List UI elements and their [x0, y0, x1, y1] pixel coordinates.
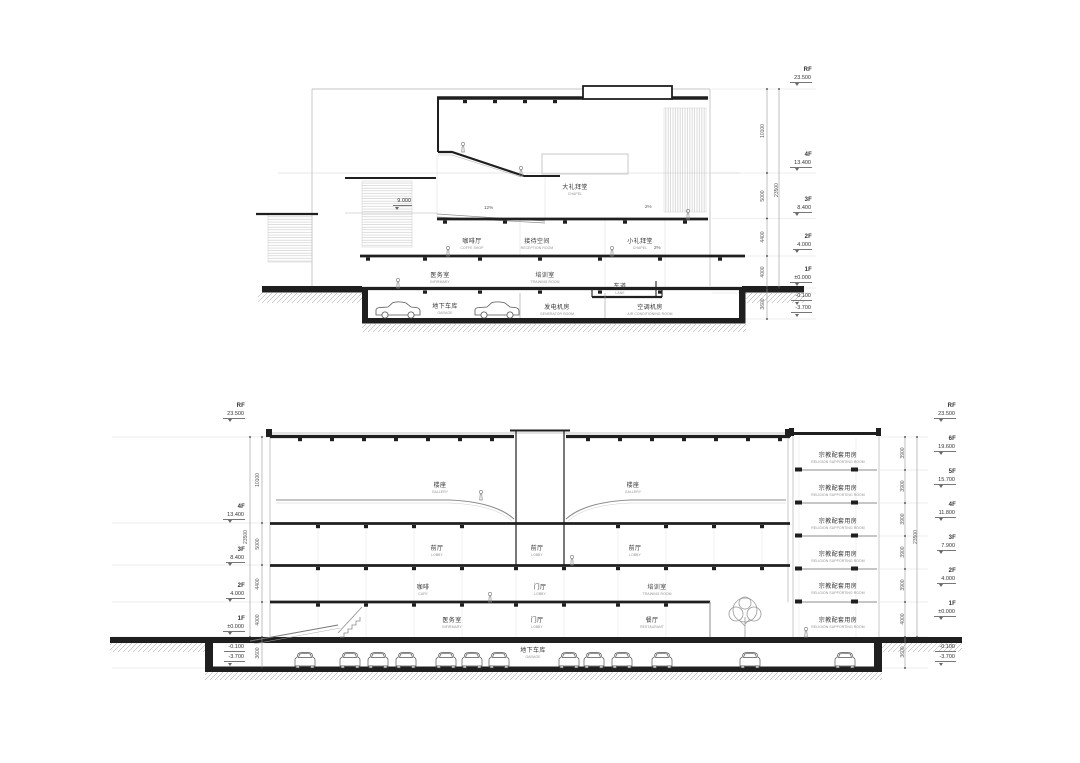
- room-label: 车道LANE: [590, 284, 650, 295]
- room-label: 大礼拜堂CHAPEL: [545, 185, 605, 196]
- level-triangle-icon: [795, 250, 799, 253]
- tree-icon: [729, 597, 761, 637]
- room-label: 医务室INFIRMARY: [422, 618, 482, 629]
- room-label: 宗教配套用房RELIGION SUPPORTING ROOM: [798, 618, 878, 629]
- level-triangle-icon: [939, 518, 943, 521]
- room-label: 门厅LOBBY: [507, 618, 567, 629]
- room-label: 楼座GALLERY: [603, 483, 663, 494]
- level-marker: 1F±0.000: [205, 616, 245, 635]
- level-marker: -0.100: [916, 644, 956, 652]
- dim-label: 5000: [254, 529, 262, 559]
- level-marker: 3F8.400: [205, 547, 245, 566]
- level-triangle-icon: [795, 83, 799, 86]
- room-label: 前厅LOBBY: [507, 546, 567, 557]
- section-drawing-sheet: RF23.500 4F13.400 3F8.400 2F4.000 1F±0.0…: [0, 0, 1080, 763]
- level-marker: 1F±0.000: [772, 267, 812, 286]
- level-marker: RF23.500: [205, 403, 245, 422]
- level-marker: 2F4.000: [916, 568, 956, 587]
- level-triangle-icon: [228, 599, 232, 602]
- dim-label: 3900: [899, 438, 907, 468]
- room-label: 地下车库GARAGE: [503, 648, 563, 659]
- dim-label: 23500: [242, 522, 250, 552]
- level-triangle-icon: [395, 207, 399, 210]
- level-triangle-icon: [795, 283, 799, 286]
- louver-band: [664, 108, 706, 212]
- level-triangle-icon: [228, 520, 232, 523]
- room-label: 小礼拜堂CHAPEL: [610, 239, 670, 250]
- dim-label: 4400: [759, 222, 767, 252]
- level-triangle-icon: [228, 632, 232, 635]
- room-label: 地下车库GARAGE: [415, 304, 475, 315]
- room-label: 前厅LOBBY: [407, 546, 467, 557]
- room-label: 宗教配套用房RELIGION SUPPORTING ROOM: [798, 584, 878, 595]
- room-label: 接待空间RECEPTION ROOM: [507, 239, 567, 250]
- level-triangle-icon: [939, 584, 943, 587]
- dim-label: 3900: [899, 504, 907, 534]
- mezzanine-level-marker: 9.000: [376, 198, 412, 210]
- dim-label: 5000: [759, 181, 767, 211]
- room-label: 宗教配套用房RELIGION SUPPORTING ROOM: [798, 519, 878, 530]
- ramp-slope-label: 12%: [484, 205, 493, 210]
- level-triangle-icon: [939, 663, 943, 666]
- level-marker: -0.100: [772, 293, 812, 305]
- level-triangle-icon: [939, 419, 943, 422]
- level-marker: 4F13.400: [772, 152, 812, 171]
- dim-label: 23500: [773, 175, 781, 205]
- roof-slope-label: 2%: [645, 204, 652, 209]
- dim-label: 3600: [899, 637, 907, 667]
- level-marker: 5F15.700: [916, 469, 956, 488]
- level-marker: 3F7.900: [916, 535, 956, 554]
- level-triangle-icon: [939, 485, 943, 488]
- room-label: 宗教配套用房RELIGION SUPPORTING ROOM: [798, 552, 878, 563]
- level-triangle-icon: [795, 314, 799, 317]
- level-marker: 2F4.000: [205, 583, 245, 602]
- dim-label: 3900: [899, 471, 907, 501]
- level-marker: 4F11.800: [916, 502, 956, 521]
- level-marker: 4F13.400: [205, 504, 245, 523]
- roof-slab: [270, 430, 881, 565]
- level-marker: 2F4.000: [772, 234, 812, 253]
- top-section-linework: [256, 86, 816, 332]
- dim-label: 3900: [899, 570, 907, 600]
- room-label: 咖啡CAFE: [393, 585, 453, 596]
- level-marker: 6F19.600: [916, 436, 956, 455]
- level-triangle-icon: [228, 563, 232, 566]
- room-label: 空调机房AIR CONDITIONING ROOM: [610, 305, 690, 316]
- room-label: 宗教配套用房RELIGION SUPPORTING ROOM: [798, 453, 878, 464]
- level-triangle-icon: [795, 213, 799, 216]
- level-triangle-icon: [795, 168, 799, 171]
- person-figures: [396, 142, 689, 288]
- level-triangle-icon: [939, 617, 943, 620]
- dim-label: 10100: [759, 116, 767, 146]
- dim-label: 3600: [759, 289, 767, 319]
- level-triangle-icon: [939, 452, 943, 455]
- level-marker: -3.700: [916, 654, 956, 666]
- room-label: 培训室TRAINING ROOM: [627, 585, 687, 596]
- room-label: 餐厅RESTAURANT: [622, 618, 682, 629]
- room-label: 楼座GALLERY: [410, 483, 470, 494]
- dim-label: 3600: [254, 638, 262, 668]
- level-triangle-icon: [228, 419, 232, 422]
- room-label: 宗教配套用房RELIGION SUPPORTING ROOM: [798, 486, 878, 497]
- dim-label: 10100: [254, 465, 262, 495]
- car-icons: [295, 653, 855, 668]
- dim-label: 4400: [254, 569, 262, 599]
- room-label: 前厅LOBBY: [605, 546, 665, 557]
- dim-label: 3900: [899, 537, 907, 567]
- level-marker: -3.700: [772, 305, 812, 317]
- dim-label: 23500: [912, 522, 920, 552]
- room-label: 门厅LOBBY: [510, 585, 570, 596]
- room-label: 医务室INFIRMARY: [410, 273, 470, 284]
- room-label: 发电机房GENERATOR ROOM: [527, 305, 587, 316]
- dim-label: 4000: [899, 604, 907, 634]
- level-marker: RF23.500: [916, 403, 956, 422]
- level-marker: RF23.500: [772, 67, 812, 86]
- level-marker: -3.700: [205, 654, 245, 666]
- level-triangle-icon: [939, 551, 943, 554]
- person-figures: [479, 490, 807, 637]
- dim-label: 4000: [254, 605, 262, 635]
- stair-block: [268, 214, 312, 262]
- dim-label: 4000: [759, 257, 767, 287]
- room-label: 咖啡厅COFFE SHOP: [442, 239, 502, 250]
- room-label: 培训室TRAINING ROOM: [515, 273, 575, 284]
- level-marker: 1F±0.000: [916, 601, 956, 620]
- stair-block: [362, 181, 412, 247]
- level-triangle-icon: [228, 663, 232, 666]
- level-marker: -0.100: [205, 644, 245, 652]
